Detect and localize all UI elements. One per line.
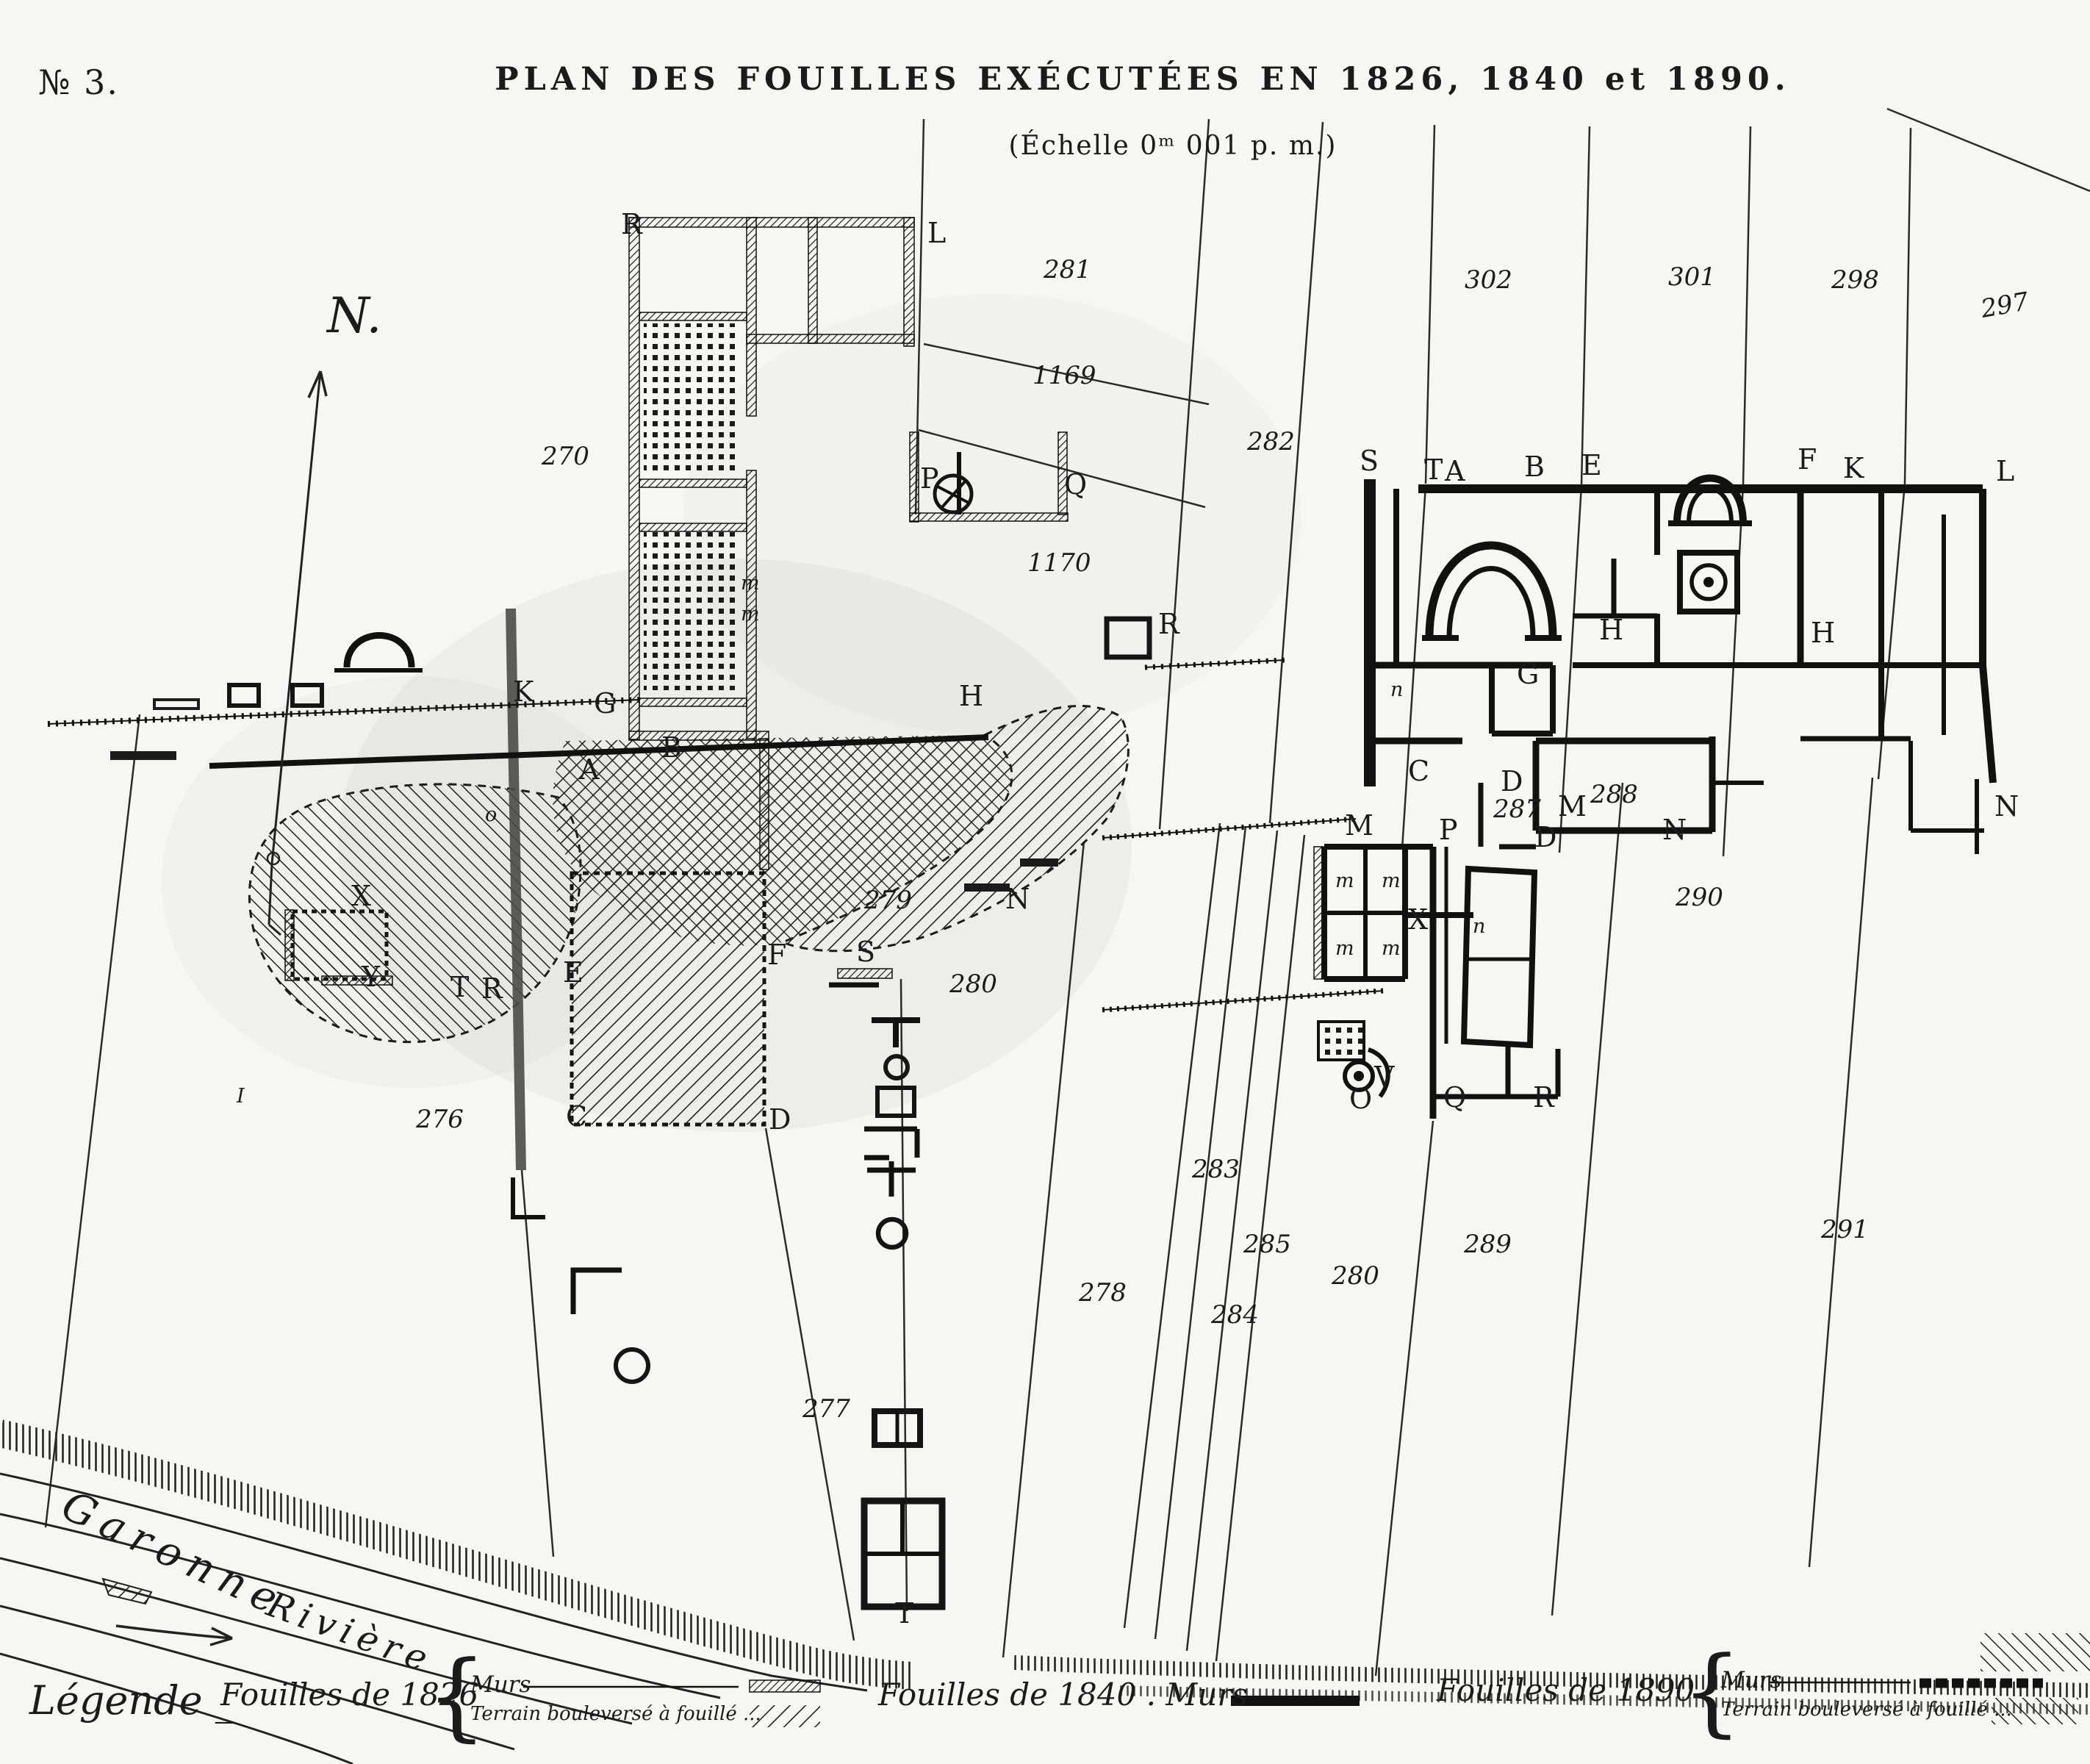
site-letter: L bbox=[1996, 455, 2014, 487]
parcel-label: 1169 bbox=[1033, 361, 1096, 390]
site-letter: O bbox=[1349, 1083, 1372, 1115]
annex-west-wall bbox=[285, 910, 294, 980]
legend-swatch-1826-murs bbox=[750, 1680, 820, 1692]
site-letter: R bbox=[1533, 1081, 1555, 1114]
bank-hatch-patch bbox=[1981, 1633, 2090, 1671]
site-letter: K bbox=[513, 675, 534, 708]
parcel-label: 280 bbox=[1331, 1261, 1379, 1291]
site-letter: X bbox=[351, 880, 371, 912]
parcel-label: 287 bbox=[1493, 795, 1541, 824]
site-letter: G bbox=[594, 687, 616, 720]
parcel-label: 280 bbox=[949, 969, 997, 999]
legend-1890-terrain: Terrain bouleversé à fouillé ... bbox=[1721, 1699, 2012, 1721]
legend-swatch-1840-murs bbox=[1231, 1696, 1360, 1706]
site-letter: P bbox=[1439, 814, 1458, 846]
site-letter: S bbox=[856, 936, 875, 968]
parcel-label: 279 bbox=[863, 886, 912, 915]
legend-1890-name: Fouilles de 1890 bbox=[1436, 1672, 1695, 1708]
site-letter: K bbox=[1843, 452, 1864, 484]
site-letter: Q bbox=[1064, 468, 1087, 501]
parcel-label: 302 bbox=[1465, 265, 1512, 295]
parcel-label: 285 bbox=[1243, 1230, 1291, 1259]
parcel-label: 290 bbox=[1675, 883, 1723, 912]
site-letter: Q bbox=[1443, 1081, 1466, 1114]
small-letter: m bbox=[1335, 937, 1354, 960]
plate-number: № 3. bbox=[38, 62, 119, 102]
site-letter: N bbox=[1005, 883, 1030, 915]
site-letter: F bbox=[1798, 443, 1817, 476]
site-letter: N bbox=[1994, 790, 2019, 822]
legend-1890-murs: Murs bbox=[1720, 1667, 1781, 1693]
parcel-label: 282 bbox=[1246, 427, 1295, 456]
small-letter: m bbox=[741, 603, 760, 625]
mosaic-floor bbox=[644, 323, 741, 474]
parcel-label: 288 bbox=[1590, 780, 1638, 809]
legend-title: Légende _ bbox=[29, 1677, 235, 1724]
site-letter: E bbox=[563, 956, 583, 989]
wall-fragment-N bbox=[964, 883, 1010, 892]
site-letter: R bbox=[1158, 608, 1180, 640]
annex-south-wall bbox=[322, 976, 392, 985]
parcel-label: 301 bbox=[1668, 262, 1716, 292]
site-letter: T bbox=[450, 971, 469, 1003]
site-letter: M bbox=[1558, 790, 1587, 822]
small-letter: m bbox=[1382, 870, 1401, 892]
site-letter: D bbox=[769, 1103, 791, 1136]
mosaic-floor bbox=[644, 532, 741, 690]
small-letter: o bbox=[485, 803, 497, 826]
site-letter: L bbox=[927, 217, 946, 249]
north-label: N. bbox=[326, 287, 382, 344]
site-letter: E bbox=[1581, 449, 1602, 481]
site-letter: R bbox=[481, 972, 503, 1005]
site-letter: T bbox=[1424, 453, 1443, 486]
small-letter: m bbox=[1335, 870, 1354, 892]
site-letter: H bbox=[1599, 614, 1623, 646]
site-letter: D bbox=[1501, 765, 1523, 797]
site-letter: Y bbox=[361, 961, 381, 993]
site-letter: C bbox=[566, 1100, 587, 1133]
site-letter: B bbox=[661, 731, 682, 764]
parcel-label: 291 bbox=[1820, 1215, 1869, 1244]
small-letter: m bbox=[741, 572, 760, 595]
site-letter: P bbox=[920, 462, 939, 495]
map-title: PLAN DES FOUILLES EXÉCUTÉES EN 1826, 184… bbox=[495, 60, 1791, 98]
mosaic-O bbox=[1318, 1022, 1364, 1060]
site-letter: S bbox=[1360, 445, 1379, 477]
site-letter: N bbox=[1662, 814, 1687, 846]
parcel-label: 284 bbox=[1210, 1300, 1259, 1330]
small-letter: n bbox=[1473, 915, 1485, 938]
parcel-label: 298 bbox=[1831, 265, 1879, 295]
small-letter: n bbox=[1390, 678, 1403, 701]
site-letter: A bbox=[1444, 455, 1465, 487]
site-letter: X bbox=[1408, 903, 1428, 936]
wall-fragment-N bbox=[1020, 858, 1058, 867]
legend-1826-murs: Murs bbox=[470, 1671, 531, 1698]
small-letter: m bbox=[1382, 937, 1401, 960]
site-letter: H bbox=[959, 680, 983, 712]
terrain-rectangle-EFCD bbox=[572, 873, 764, 1125]
parcel-label: 270 bbox=[541, 442, 589, 471]
parcel-label: 289 bbox=[1463, 1230, 1512, 1259]
site-letter: V bbox=[1373, 1061, 1395, 1093]
wall-fragment-S bbox=[838, 969, 892, 978]
site-letter: T bbox=[895, 1597, 913, 1629]
parcel-label: 277 bbox=[802, 1394, 850, 1424]
site-letter: F bbox=[767, 939, 786, 971]
legend-1840-name: Fouilles de 1840 . Murs bbox=[877, 1677, 1248, 1713]
site-letter: G bbox=[1517, 658, 1539, 690]
site-letter: C bbox=[1408, 755, 1429, 787]
parcel-label: 283 bbox=[1191, 1155, 1240, 1184]
site-letter: R bbox=[621, 208, 643, 240]
parcel-label: 281 bbox=[1043, 255, 1091, 284]
site-letter: M bbox=[1345, 809, 1373, 842]
excavation-plan-map: № 3. PLAN DES FOUILLES EXÉCUTÉES EN 1826… bbox=[0, 0, 2090, 1764]
map-scale: (Échelle 0ᵐ 001 p. m.) bbox=[1009, 130, 1337, 161]
site-letter: A bbox=[578, 753, 600, 786]
site-letter: D bbox=[1534, 821, 1556, 853]
parcel-label: 278 bbox=[1078, 1278, 1127, 1308]
site-letter: H bbox=[1811, 617, 1835, 649]
scanned-plan-page: № 3. PLAN DES FOUILLES EXÉCUTÉES EN 1826… bbox=[0, 0, 2090, 1764]
parcel-label: 276 bbox=[415, 1105, 464, 1134]
legend-1826-terrain: Terrain bouleversé à fouillé ... bbox=[470, 1703, 761, 1725]
site-letter: B bbox=[1524, 451, 1545, 483]
parcel-label: 1170 bbox=[1027, 548, 1091, 578]
small-letter: I bbox=[236, 1085, 245, 1108]
